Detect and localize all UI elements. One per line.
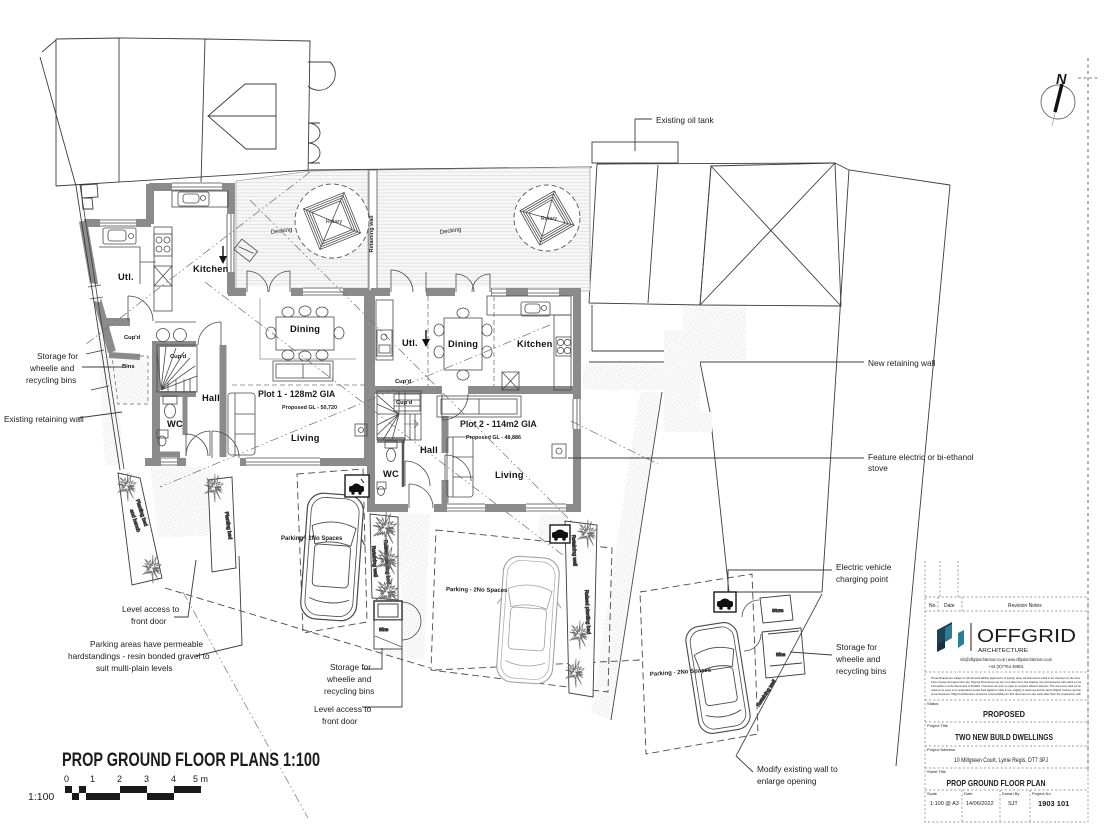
svg-text:Modify existing wall to: Modify existing wall to [757, 764, 838, 774]
svg-text:hardstandings - resin bonded g: hardstandings - resin bonded gravel to [68, 651, 210, 661]
svg-text:Plot 2 - 114m2 GIA: Plot 2 - 114m2 GIA [460, 419, 537, 429]
svg-text:Storage for: Storage for [330, 662, 371, 672]
svg-text:WC: WC [383, 469, 399, 479]
svg-text:Cup'd: Cup'd [124, 335, 141, 341]
svg-text:10 Millgreen Court, Lyme Regis: 10 Millgreen Court, Lyme Regis, DT7 3PJ [954, 758, 1048, 764]
svg-text:stove: stove [868, 463, 888, 473]
svg-text:Bins: Bins [776, 652, 786, 658]
svg-text:charging point: charging point [836, 574, 889, 584]
svg-text:Proposed GL - 50,720: Proposed GL - 50,720 [282, 405, 337, 411]
svg-text:suit multi-plain levels: suit multi-plain levels [96, 663, 173, 673]
svg-text:commissioned. Offgrid architec: commissioned. Offgrid architecture would… [931, 692, 1081, 696]
svg-text:Revision Notes: Revision Notes [1008, 603, 1042, 609]
svg-text:Sheet Title: Sheet Title [927, 769, 947, 774]
svg-text:Living: Living [495, 470, 524, 480]
svg-text:Date: Date [944, 603, 955, 609]
svg-text:OFFGRID: OFFGRID [977, 626, 1076, 646]
svg-text:front door: front door [131, 616, 167, 626]
svg-text:Utl.: Utl. [118, 272, 134, 282]
svg-text:Kitchen: Kitchen [517, 339, 553, 349]
svg-text:Existing oil tank: Existing oil tank [656, 115, 714, 125]
svg-text:3: 3 [144, 774, 149, 784]
svg-text:Rotary: Rotary [541, 216, 557, 222]
svg-text:PROP GROUND FLOOR PLAN: PROP GROUND FLOOR PLAN [947, 778, 1046, 788]
svg-text:0: 0 [64, 774, 69, 784]
svg-text:1:100 @ A3: 1:100 @ A3 [930, 801, 959, 807]
svg-text:14/06/2022: 14/06/2022 [966, 801, 994, 807]
svg-text:Level access to: Level access to [122, 604, 180, 614]
svg-text:Existing retaining wall: Existing retaining wall [4, 414, 84, 424]
svg-text:Cup'd: Cup'd [396, 400, 413, 406]
svg-text:+44 (0)7754 49801: +44 (0)7754 49801 [988, 664, 1024, 669]
svg-text:Store: Store [772, 608, 784, 614]
svg-text:enlarge opening: enlarge opening [757, 776, 817, 786]
svg-text:5 m: 5 m [193, 774, 208, 784]
svg-text:TWO NEW BUILD DWELLINGS: TWO NEW BUILD DWELLINGS [955, 732, 1053, 742]
svg-text:Parking - 2No Spaces: Parking - 2No Spaces [446, 587, 508, 594]
svg-text:Storage for: Storage for [37, 351, 78, 361]
svg-text:Parking - 2No Spaces: Parking - 2No Spaces [281, 536, 343, 542]
svg-text:Project Address: Project Address [927, 747, 955, 752]
svg-text:N: N [1056, 72, 1067, 88]
svg-text:PROP GROUND FLOOR PLANS 1:100: PROP GROUND FLOOR PLANS 1:100 [62, 750, 320, 771]
svg-text:recycling bins: recycling bins [26, 375, 76, 385]
svg-text:Dining: Dining [290, 324, 320, 334]
svg-text:1:100: 1:100 [28, 791, 54, 803]
svg-text:Dining: Dining [448, 339, 478, 349]
svg-text:1: 1 [90, 774, 95, 784]
svg-text:Electric vehicle: Electric vehicle [836, 562, 892, 572]
svg-text:2: 2 [117, 774, 122, 784]
svg-text:SJT: SJT [1008, 801, 1018, 807]
svg-text:Scale: Scale [927, 791, 938, 796]
svg-text:Rotary: Rotary [326, 219, 342, 225]
svg-text:Parking areas have permeable: Parking areas have permeable [90, 639, 203, 649]
svg-text:No.: No. [929, 603, 937, 609]
svg-text:Bins: Bins [379, 627, 389, 633]
svg-text:Project No: Project No [1032, 791, 1051, 796]
svg-text:Storage for: Storage for [836, 642, 877, 652]
svg-text:Plot 1 - 128m2 GIA: Plot 1 - 128m2 GIA [258, 389, 336, 399]
svg-text:wheelie and: wheelie and [29, 363, 75, 373]
svg-text:Utl.: Utl. [402, 338, 418, 348]
svg-text:info@offgridarchitecture.co.uk: info@offgridarchitecture.co.uk | www.off… [960, 657, 1053, 662]
svg-text:recycling bins: recycling bins [836, 666, 886, 676]
svg-text:Cup'd: Cup'd [170, 354, 187, 360]
svg-text:Hall: Hall [202, 393, 220, 403]
svg-text:WC: WC [167, 419, 183, 429]
svg-text:Project Title: Project Title [927, 723, 949, 728]
svg-text:Hall: Hall [420, 445, 438, 455]
svg-text:PROPOSED: PROPOSED [983, 709, 1025, 719]
svg-text:Date: Date [964, 791, 973, 796]
svg-text:Bins: Bins [122, 364, 135, 370]
svg-text:Living: Living [291, 433, 320, 443]
svg-text:4: 4 [171, 774, 176, 784]
svg-text:wheelie and: wheelie and [835, 654, 881, 664]
svg-text:1903 101: 1903 101 [1038, 799, 1069, 808]
svg-text:Status: Status [927, 701, 938, 706]
svg-text:Retaining wall: Retaining wall [369, 215, 375, 252]
svg-text:Feature electric or bi-ethanol: Feature electric or bi-ethanol [868, 452, 974, 462]
svg-text:Drawn By: Drawn By [1002, 791, 1019, 796]
svg-text:Kitchen: Kitchen [193, 264, 229, 274]
svg-text:front door: front door [322, 716, 358, 726]
svg-text:Level access to: Level access to [314, 704, 372, 714]
svg-text:New retaining wall: New retaining wall [868, 358, 935, 368]
svg-text:wheelie and: wheelie and [326, 674, 372, 684]
svg-text:Cup'd: Cup'd [395, 379, 412, 385]
svg-text:ARCHITECTURE: ARCHITECTURE [978, 648, 1028, 654]
svg-text:recycling bins: recycling bins [324, 686, 374, 696]
svg-text:Proposed GL - 48,886: Proposed GL - 48,886 [466, 435, 521, 441]
